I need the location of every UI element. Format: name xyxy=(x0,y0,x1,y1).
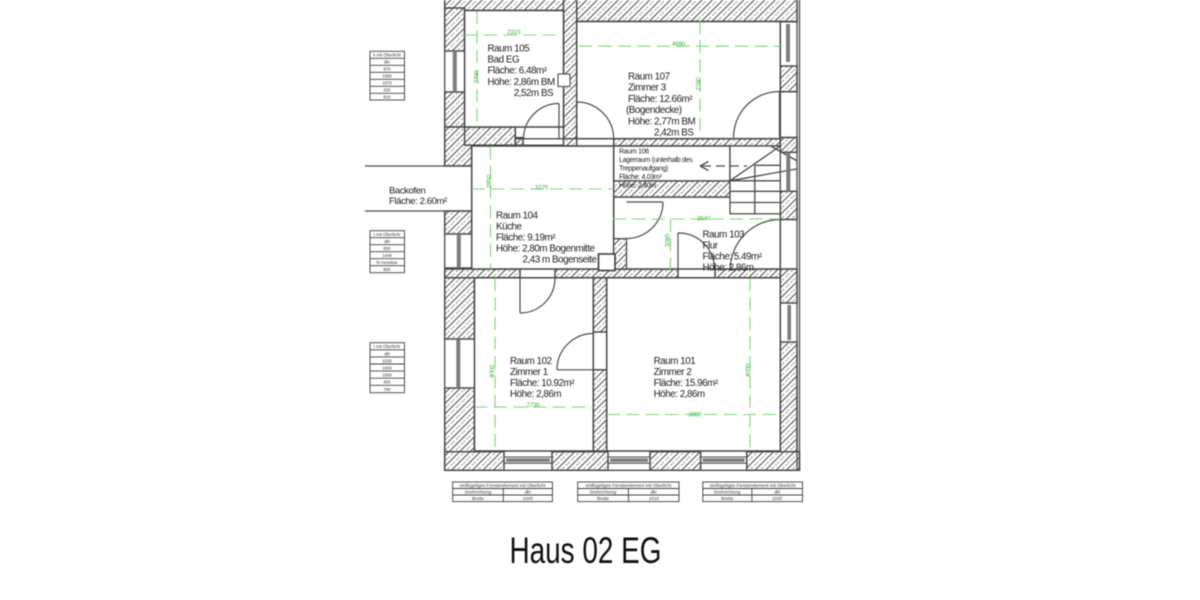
svg-text:4000: 4000 xyxy=(489,364,496,378)
svg-text:1020: 1020 xyxy=(772,496,783,501)
svg-text:400: 400 xyxy=(383,380,391,385)
svg-text:1040: 1040 xyxy=(523,496,534,501)
svg-text:1030: 1030 xyxy=(382,358,392,363)
svg-text:1550: 1550 xyxy=(382,373,392,378)
svg-text:4690: 4690 xyxy=(672,41,686,48)
svg-text:1570: 1570 xyxy=(382,81,392,86)
svg-text:Fläche: 6.48m²: Fläche: 6.48m² xyxy=(488,66,548,77)
svg-text:1010: 1010 xyxy=(649,496,660,501)
svg-text:dkl: dkl xyxy=(384,239,390,244)
svg-text:Höhe: 2,77m BM: Höhe: 2,77m BM xyxy=(628,116,695,127)
svg-text:2730: 2730 xyxy=(526,402,540,409)
svg-text:2,42m BS: 2,42m BS xyxy=(654,128,694,139)
svg-text:Fläche: 5.49m²: Fläche: 5.49m² xyxy=(703,252,763,263)
svg-text:330: 330 xyxy=(383,88,391,93)
svg-text:Breite: Breite xyxy=(472,496,484,501)
svg-text:Fläche: 15.96m²: Fläche: 15.96m² xyxy=(654,378,719,389)
svg-text:einflügeliges Fensterelement m: einflügeliges Fensterelement mit Oberlic… xyxy=(710,483,797,488)
svg-text:Haus 02 EG: Haus 02 EG xyxy=(510,530,662,571)
svg-text:2,43 m Bogenseite: 2,43 m Bogenseite xyxy=(523,255,598,266)
svg-text:Raum 107: Raum 107 xyxy=(628,72,670,83)
svg-text:Fläche: 12.66m²: Fläche: 12.66m² xyxy=(628,94,693,105)
svg-text:dkl: dkl xyxy=(774,490,780,495)
svg-text:Höhe: 2,86m: Höhe: 2,86m xyxy=(510,389,561,400)
svg-text:2,52m BS: 2,52m BS xyxy=(514,88,554,99)
svg-text:Fläche: 9.19m²: Fläche: 9.19m² xyxy=(496,233,556,244)
svg-text:Raum 106: Raum 106 xyxy=(619,149,649,156)
svg-text:Flur: Flur xyxy=(703,241,719,252)
svg-text:Drehrichtung: Drehrichtung xyxy=(465,490,492,495)
svg-text:Küche: Küche xyxy=(496,222,523,233)
svg-text:800: 800 xyxy=(383,246,391,251)
svg-text:3990: 3990 xyxy=(688,412,702,419)
svg-text:2780: 2780 xyxy=(696,77,703,91)
svg-text:Raum 104: Raum 104 xyxy=(496,211,539,222)
svg-text:1690: 1690 xyxy=(382,74,392,79)
svg-text:4000: 4000 xyxy=(745,363,752,377)
svg-text:(Bogendecke): (Bogendecke) xyxy=(626,105,682,116)
svg-text:k mit Oberlicht: k mit Oberlicht xyxy=(373,53,401,58)
svg-text:790: 790 xyxy=(383,387,391,392)
svg-text:dkr: dkr xyxy=(651,490,658,495)
svg-text:910: 910 xyxy=(383,95,391,100)
svg-text:800: 800 xyxy=(383,267,391,272)
svg-text:Zimmer 3: Zimmer 3 xyxy=(628,83,667,94)
svg-text:Zimmer 2: Zimmer 2 xyxy=(654,367,692,378)
svg-text:Breite: Breite xyxy=(597,496,609,501)
svg-text:1440: 1440 xyxy=(382,253,392,258)
svg-text:dkr: dkr xyxy=(384,60,391,65)
svg-text:Breite: Breite xyxy=(721,496,733,501)
svg-text:Zimmer 1: Zimmer 1 xyxy=(510,367,548,378)
svg-text:dkr: dkr xyxy=(525,490,532,495)
svg-text:Drehrichtung: Drehrichtung xyxy=(590,490,617,495)
svg-text:Bad EG: Bad EG xyxy=(488,55,520,66)
svg-text:dkl: dkl xyxy=(384,351,390,356)
svg-text:t mit Oberlicht: t mit Oberlicht xyxy=(374,232,401,237)
svg-text:Höhe: 2,86m: Höhe: 2,86m xyxy=(703,263,754,274)
svg-text:einflügeliges Fensterelement m: einflügeliges Fensterelement mit Oberlic… xyxy=(586,483,673,488)
svg-text:1650: 1650 xyxy=(382,366,392,371)
svg-text:2790: 2790 xyxy=(474,70,481,84)
svg-text:Raum 101: Raum 101 xyxy=(654,356,696,367)
svg-text:Treppenaufgang): Treppenaufgang) xyxy=(619,166,668,173)
svg-text:Fläche: 4.03m²: Fläche: 4.03m² xyxy=(619,174,662,181)
svg-text:970: 970 xyxy=(383,67,391,72)
svg-text:Raum 105: Raum 105 xyxy=(488,44,531,55)
svg-text:2850: 2850 xyxy=(486,174,493,188)
svg-text:ht messbar: ht messbar xyxy=(376,260,398,265)
svg-text:Lagerraum (unterhalb des: Lagerraum (unterhalb des xyxy=(619,157,693,164)
svg-text:2310: 2310 xyxy=(507,29,521,36)
svg-text:Fläche: 2.60m²: Fläche: 2.60m² xyxy=(389,196,447,207)
svg-text:Raum 103: Raum 103 xyxy=(703,230,746,241)
svg-text:Höhe: 2,86m BM: Höhe: 2,86m BM xyxy=(488,77,555,88)
svg-text:Höhe: 2,80m Bogenmitte: Höhe: 2,80m Bogenmitte xyxy=(496,244,595,255)
svg-text:Höhe: 2,40m: Höhe: 2,40m xyxy=(619,183,656,190)
svg-text:Höhe: 2,86m: Höhe: 2,86m xyxy=(654,389,705,400)
svg-text:einflügeliges Fensterelement m: einflügeliges Fensterelement mit Oberlic… xyxy=(460,483,547,488)
svg-text:Fläche: 10.92m²: Fläche: 10.92m² xyxy=(510,378,575,389)
svg-text:Raum 102: Raum 102 xyxy=(510,356,552,367)
svg-text:3540: 3540 xyxy=(697,216,711,223)
svg-text:Backofen: Backofen xyxy=(389,186,426,197)
svg-text:l mit Oberlicht: l mit Oberlicht xyxy=(374,344,401,349)
svg-text:Drehrichtung: Drehrichtung xyxy=(714,490,741,495)
svg-text:3270: 3270 xyxy=(535,185,549,192)
svg-text:3080: 3080 xyxy=(665,233,672,247)
